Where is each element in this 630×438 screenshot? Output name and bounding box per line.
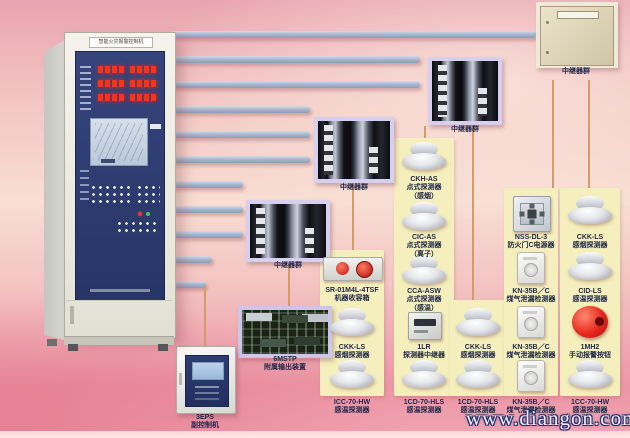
device-model: CKK-LS — [554, 234, 626, 242]
repeater-group-label: 中继器群 — [429, 126, 501, 134]
device-model: ICC-70-HW — [316, 399, 388, 407]
heat-detector-image — [568, 360, 612, 388]
cabinet-foot — [158, 344, 168, 351]
smoke-detector-image — [330, 308, 374, 336]
device-model: 3EPS — [169, 414, 241, 422]
detector-base — [456, 371, 500, 388]
cabinet-button-grid — [116, 220, 160, 234]
device-model: SR-01M4L-4TSF — [316, 287, 388, 295]
repeater-group-label: 中继器群 — [318, 184, 390, 192]
device-model: CCA-ASW — [388, 288, 460, 296]
device-label-icc: ICC-70-HW 感温探测器 — [316, 399, 388, 416]
status-led-green — [146, 212, 150, 216]
heat-detector-image — [330, 360, 374, 388]
rack-photo-image — [250, 204, 326, 258]
device-desc: 附属输出装置 — [249, 364, 321, 372]
device-label-ckk-e: CKK-LS 感烟探测器 — [554, 234, 626, 251]
cabinet-side-panel — [44, 40, 65, 340]
cabinet-door-handle — [70, 306, 74, 324]
cabinet-door-seam — [66, 300, 172, 301]
detector-base — [402, 371, 446, 388]
cabinet-button-grid — [136, 184, 160, 206]
status-led-red — [138, 212, 142, 216]
bus-bar — [170, 131, 310, 138]
wire — [588, 80, 590, 192]
led-display — [98, 66, 124, 73]
rack-photo-image — [432, 61, 498, 121]
device-label-eps: 3EPS 副控制机 — [169, 414, 241, 431]
device-label-ckk-a: CKK-LS 感烟探测器 — [316, 344, 388, 361]
receiver-box-image — [323, 257, 383, 281]
panel-indicator-cluster — [80, 170, 89, 204]
cabinet-foot — [47, 339, 57, 346]
wire — [204, 286, 206, 346]
led-display — [98, 80, 124, 87]
bus-bar — [170, 56, 420, 63]
device-model: CID-LS — [554, 288, 626, 296]
device-model: 6MSTP — [249, 356, 321, 364]
device-label-mstp: 6MSTP 附属输出装置 — [249, 356, 321, 373]
cabinet-title-plate: 智能火灾报警控制机 — [89, 37, 153, 48]
device-desc: （离子） — [388, 251, 460, 259]
device-model: 1MH2 — [554, 344, 626, 352]
detector-base — [402, 267, 446, 284]
detector-base — [568, 263, 612, 280]
device-desc: 点式探测器 — [388, 242, 460, 250]
bus-bar — [170, 181, 243, 188]
heat-detector-image — [568, 252, 612, 280]
cabinet-model-tag — [150, 124, 161, 129]
device-desc: （感烟） — [388, 193, 460, 201]
detector-base — [330, 371, 374, 388]
bus-bar — [170, 206, 243, 213]
device-label-cid: CID-LS 感温探测器 — [554, 288, 626, 305]
detector-base — [402, 213, 446, 230]
bus-bar — [170, 106, 310, 113]
detector-base — [568, 207, 612, 224]
heat-detector-image — [402, 256, 446, 284]
wire — [472, 126, 474, 302]
smoke-detector-image — [568, 196, 612, 224]
repeater-rack-photo — [314, 117, 394, 183]
smoke-detector-image — [402, 142, 446, 170]
wire — [552, 80, 554, 192]
fire-alarm-control-cabinet: 智能火灾报警控制机 — [64, 32, 176, 338]
detector-base — [456, 319, 500, 336]
smoke-detector-image — [456, 308, 500, 336]
eps-sub-panel — [176, 346, 236, 414]
bus-bar — [170, 31, 536, 38]
fire-alarm-system-diagram: 中继器群 中继器群 中继器群 中继器群 6MSTP 附属输出装置 3EPS 副控… — [0, 0, 630, 438]
bus-bar — [170, 81, 420, 88]
panel-footer-text — [90, 289, 150, 292]
watermark: www.diangon.com — [466, 406, 630, 431]
device-model: CKH-AS — [388, 176, 460, 184]
device-label-cca: CCA-ASW 点式探测器 （感温） — [388, 288, 460, 313]
wire — [288, 264, 290, 308]
device-desc: 感温探测器 — [316, 407, 388, 415]
device-label-ckh: CKH-AS 点式探测器 （感烟） — [388, 176, 460, 201]
cabinet-foot — [68, 344, 78, 351]
device-desc: 感烟探测器 — [554, 242, 626, 250]
device-desc: 感烟探测器 — [316, 352, 388, 360]
ion-detector-image — [402, 202, 446, 230]
device-label-cic: CIC-AS 点式探测器 （离子） — [388, 234, 460, 259]
heat-detector-image — [402, 360, 446, 388]
device-model: CIC-AS — [388, 234, 460, 242]
device-desc: 机器收容箱 — [316, 295, 388, 303]
cabinet-control-panel — [75, 51, 165, 301]
gas-leak-detector-image — [517, 306, 545, 338]
heat-detector-image — [456, 360, 500, 388]
bus-bar — [170, 156, 310, 163]
device-desc: （感温） — [388, 305, 460, 313]
device-desc: 点式探测器 — [388, 184, 460, 192]
cabinet-button-grid — [90, 184, 132, 206]
device-label-mh2: 1MH2 手动报警按钮 — [554, 344, 626, 361]
eps-panel-keys — [195, 386, 219, 388]
rack-photo-image — [318, 121, 390, 179]
manual-alarm-button-image — [570, 304, 610, 340]
device-label-sr: SR-01M4L-4TSF 机器收容箱 — [316, 287, 388, 304]
cabinet-lcd-screen — [90, 118, 148, 166]
repeater-module-image — [408, 312, 442, 340]
detector-base — [330, 319, 374, 336]
bus-bar — [170, 256, 212, 263]
device-desc: 手动报警按钮 — [554, 352, 626, 360]
led-display — [130, 94, 156, 101]
eps-panel-face — [185, 355, 229, 407]
device-desc: 点式探测器 — [388, 296, 460, 304]
door-power-plate-image — [513, 196, 551, 232]
led-display — [130, 80, 156, 87]
repeater-rack-photo — [246, 200, 330, 262]
device-desc: 感温探测器 — [554, 296, 626, 304]
detector-base — [568, 371, 612, 388]
gas-leak-detector-image — [517, 252, 545, 284]
repeater-box — [540, 6, 614, 66]
eps-panel-latch — [179, 373, 182, 385]
device-model: CKK-LS — [316, 344, 388, 352]
device-desc: 副控制机 — [169, 422, 241, 430]
bus-bar — [170, 231, 243, 238]
eps-panel-screen — [192, 362, 224, 380]
repeater-group-label: 中继器群 — [540, 68, 612, 76]
led-display — [130, 66, 156, 73]
led-display — [98, 94, 124, 101]
repeater-rack-photo — [428, 57, 502, 125]
detector-base — [402, 153, 446, 170]
panel-indicator-cluster — [80, 66, 91, 112]
repeater-group-label: 中继器群 — [252, 262, 324, 270]
wire — [352, 184, 354, 250]
gas-leak-detector-image — [517, 360, 545, 392]
